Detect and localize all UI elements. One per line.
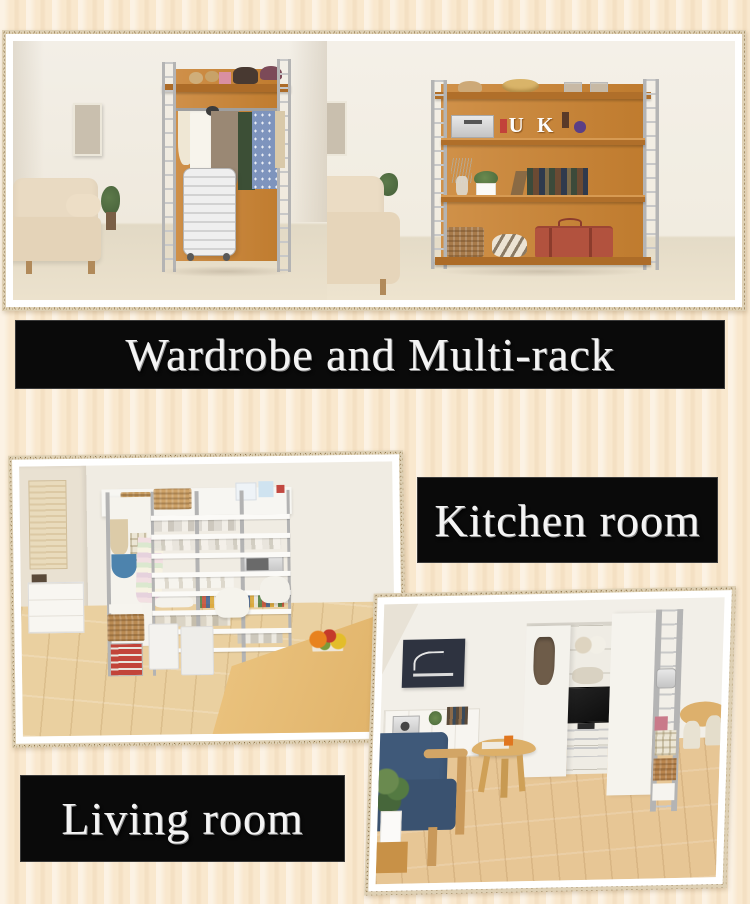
hero-white-border: U K [6, 34, 742, 307]
hero-banner: Wardrobe and Multi-rack [15, 320, 725, 389]
living-room-photo [376, 597, 725, 884]
shelf-clutter [572, 667, 603, 684]
check-towel [655, 730, 676, 756]
shelf-clutter [573, 633, 608, 656]
decor-letters: U K [509, 112, 566, 138]
kitchen-banner: Kitchen room [417, 477, 718, 563]
mini-stereo [451, 115, 494, 138]
blue-floral-dress [252, 111, 277, 189]
suitcase-wheel [223, 253, 230, 260]
white-drawer-chest [28, 582, 85, 634]
dark-bag [233, 67, 258, 84]
stereo-slot [464, 120, 482, 124]
beige-chair [705, 715, 723, 746]
rack-bottom-board [435, 257, 651, 265]
beige-chair [682, 721, 700, 749]
wicker-basket [107, 613, 145, 641]
red-cap [277, 485, 285, 493]
hero-photos: U K [13, 41, 735, 300]
kitchen-speckle-border [8, 450, 407, 747]
wicker-basket [653, 758, 678, 781]
multi-rack-room-photo: U K [327, 41, 735, 300]
white-bin [180, 626, 214, 675]
beige-scarf [275, 111, 284, 168]
sofa-leg [380, 279, 386, 295]
tv-rack [563, 728, 608, 757]
kitchen-white-border [12, 454, 403, 743]
orange-mug [504, 736, 513, 746]
rack-top-board [435, 92, 651, 99]
white-bin [148, 624, 178, 670]
rack-shelf [150, 514, 290, 521]
rack-top-shelf [162, 84, 291, 92]
living-white-border [368, 590, 732, 891]
plant [101, 186, 120, 214]
kitchen-room-photo [19, 461, 396, 736]
kitchen-photo-frame [8, 450, 407, 747]
blue-box [258, 481, 273, 497]
red-figurine [500, 119, 506, 133]
living-photo-frame [364, 586, 736, 896]
red-vintage-suitcase [535, 226, 613, 258]
striped-pouch [492, 234, 527, 257]
floor-shadow [437, 266, 649, 276]
suitcase-wheel [187, 253, 194, 260]
rack-shelf [441, 138, 645, 145]
hero-banner-label: Wardrobe and Multi-rack [125, 328, 614, 381]
sofa-seat [13, 217, 101, 261]
folded-towels [109, 604, 143, 614]
sofa-leg [88, 261, 94, 274]
book-row [527, 168, 588, 196]
hat [205, 71, 219, 83]
hanging-bag [109, 519, 128, 554]
wardrobe-room-photo [13, 41, 327, 300]
white-stack [652, 783, 675, 800]
rack-side-ladder-right [643, 79, 659, 271]
sofa-partial-seat [327, 212, 400, 285]
canned-drinks-rack [109, 643, 143, 676]
pink-box [219, 72, 232, 84]
basket [154, 489, 192, 510]
rack-side-ladder-left [431, 80, 447, 269]
fruit-bowl [309, 629, 347, 651]
wall-art-partial [327, 101, 347, 157]
rack-shelf [441, 195, 645, 202]
wall-art [73, 103, 102, 156]
silver-pot [655, 668, 676, 688]
sofa-leg [26, 261, 32, 274]
purple-ball [574, 121, 586, 133]
vase [456, 176, 468, 197]
pink-item [654, 716, 668, 730]
hero-photo-frame: U K [2, 30, 746, 311]
microwave-window [246, 558, 269, 570]
rack-side-ladder-left [162, 62, 176, 272]
white-chair [215, 588, 249, 618]
wood-stool [376, 842, 408, 873]
product-page: U K [0, 0, 750, 904]
suitcase [183, 168, 236, 256]
partition-panel [606, 613, 656, 796]
plant-pot [106, 212, 116, 230]
sofa-armrest [66, 194, 101, 217]
sofa-wood-leg [427, 827, 437, 866]
hero-speckle-border: U K [2, 30, 746, 311]
floor-plant [376, 766, 410, 817]
living-banner-label: Living room [61, 792, 303, 845]
white-chair [259, 576, 289, 603]
living-banner: Living room [20, 775, 345, 862]
hanging-coat [533, 637, 555, 685]
dark-bottle [562, 112, 569, 128]
white-planter [380, 811, 401, 845]
tv [563, 686, 612, 723]
wall-corner-shade-right [289, 41, 327, 222]
living-speckle-border [364, 586, 736, 896]
kitchen-banner-label: Kitchen room [434, 494, 700, 547]
books [447, 706, 468, 725]
hat [189, 72, 203, 84]
wicker-basket [447, 227, 484, 257]
floor-shadow [157, 266, 295, 276]
table-leg [501, 758, 508, 797]
window-blind [29, 479, 68, 569]
